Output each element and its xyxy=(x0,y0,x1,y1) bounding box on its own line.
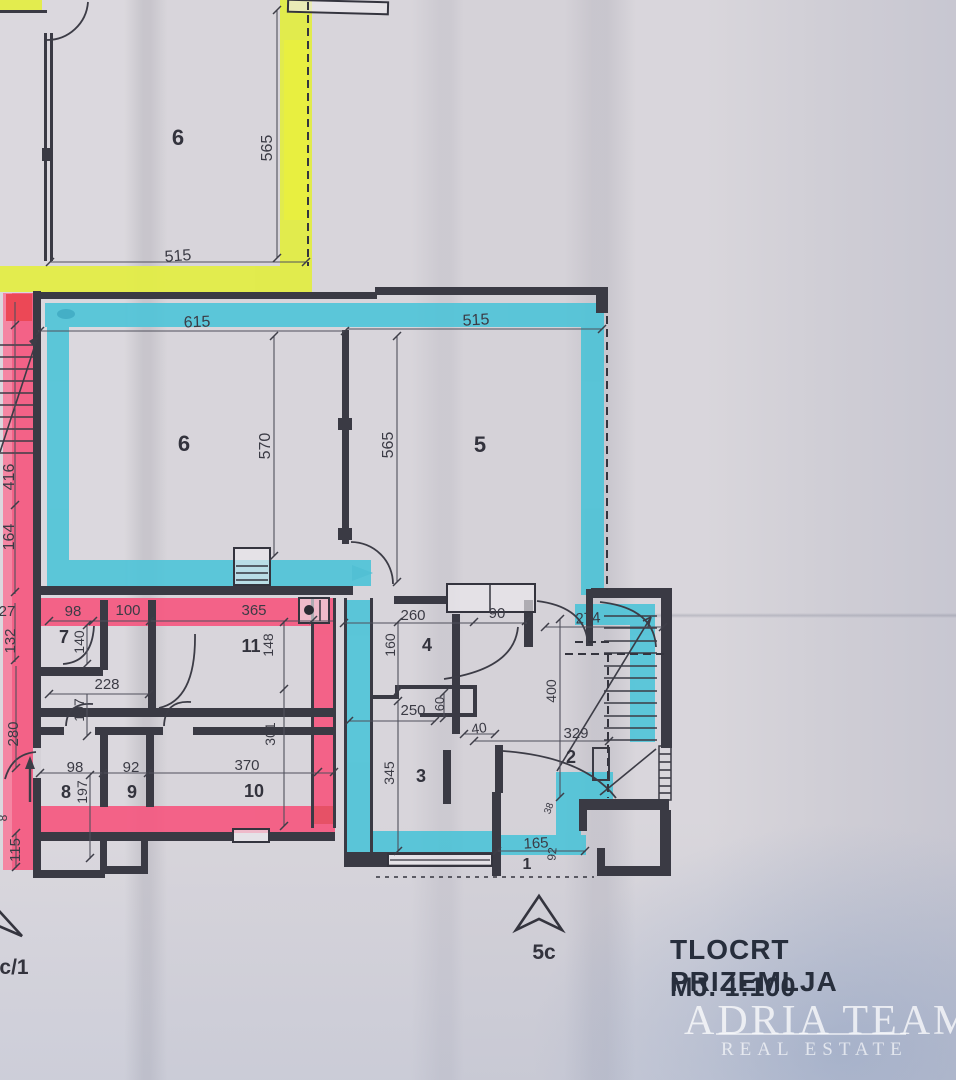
dim-label: 115 xyxy=(7,838,24,862)
room-label: 10 xyxy=(244,781,264,801)
dim-label: 565 xyxy=(380,432,397,459)
dim-label: 416 xyxy=(1,464,18,491)
room-label: 7 xyxy=(59,627,69,647)
dim-label: 515 xyxy=(462,311,490,329)
dim-label: 100 xyxy=(115,602,140,619)
section-marker-label: c/1 xyxy=(0,956,29,979)
dim-label: 38 xyxy=(542,801,556,816)
room-label: 8 xyxy=(61,782,71,802)
section-marker-5c: 5c xyxy=(516,896,562,964)
dim-label: 40 xyxy=(470,719,488,737)
dim-label: 570 xyxy=(257,433,274,460)
dim-label: 148 xyxy=(260,633,276,657)
watermark-rule xyxy=(716,1033,906,1035)
window-bottom-left xyxy=(233,829,269,842)
dim-label: 98 xyxy=(67,759,84,776)
room-label: 3 xyxy=(416,766,426,786)
dim-label: 329 xyxy=(563,725,588,742)
floor-plan-photo: 565 515 615 515 570 565 416 164 27 132 2… xyxy=(0,0,956,1080)
dim-label: 565 xyxy=(259,135,276,162)
dim-label: 107 xyxy=(71,698,87,722)
dim-label: 160 xyxy=(382,633,398,657)
dim-label: 8 xyxy=(0,814,10,821)
dim-label: 250 xyxy=(400,702,425,719)
dim-label: 365 xyxy=(241,602,266,619)
section-marker-c1: c/1 xyxy=(0,890,29,979)
dim-label: 98 xyxy=(65,603,82,620)
dim-label: 164 xyxy=(1,524,18,551)
dim-label: 370 xyxy=(234,757,259,774)
dim-label: 301 xyxy=(262,722,278,746)
dim-label: 345 xyxy=(381,761,397,785)
dim-label: 515 xyxy=(164,247,192,266)
dim-label: 60 xyxy=(432,697,447,711)
window-top xyxy=(288,0,388,14)
dim-label: 90 xyxy=(489,605,506,622)
dim-label: 92 xyxy=(544,846,559,861)
chimney-symbol xyxy=(234,548,270,585)
room-label: 11 xyxy=(241,636,260,656)
dim-label: 400 xyxy=(543,679,559,703)
dim-label: 140 xyxy=(71,630,87,654)
room-label: 6 xyxy=(178,431,190,456)
room-label: 1 xyxy=(523,856,532,873)
watermark-tagline: REAL ESTATE xyxy=(721,1039,908,1061)
section-marker-label: 5c xyxy=(532,941,556,964)
room-label: 5 xyxy=(474,432,486,457)
watermark-brand: ADRIA TEAM xyxy=(684,997,956,1045)
dim-label: 274 xyxy=(575,609,601,627)
floor-plan-drawing: 565 515 615 515 570 565 416 164 27 132 2… xyxy=(0,0,956,1080)
dim-label: 228 xyxy=(94,676,119,693)
room-label: 4 xyxy=(422,635,432,655)
room-label: 2 xyxy=(566,747,576,767)
room-label: 9 xyxy=(127,782,137,802)
dim-label: 197 xyxy=(74,780,90,804)
dim-label: 132 xyxy=(2,628,19,653)
dim-label: 260 xyxy=(400,607,425,624)
dim-label: 27 xyxy=(0,603,15,620)
room-label: 6 xyxy=(172,125,184,150)
dim-label: 92 xyxy=(123,759,140,776)
dim-label: 615 xyxy=(183,314,210,332)
window-room3 xyxy=(388,854,492,866)
dim-label: 280 xyxy=(5,721,22,746)
